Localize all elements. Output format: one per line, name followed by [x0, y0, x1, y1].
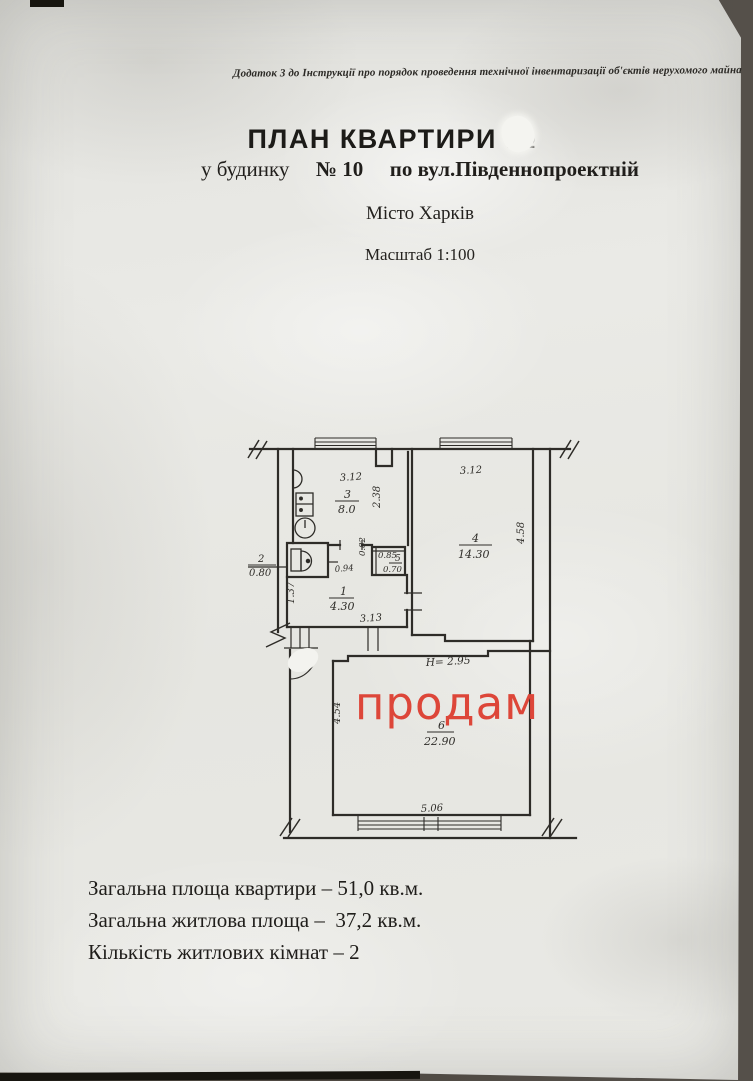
house-number: № 10 — [316, 157, 363, 181]
dim-kitchen-depth: 2.38 — [372, 486, 383, 509]
dim-hall-depth: 1.37 — [286, 581, 297, 604]
kitchen-area: 8.0 — [338, 503, 356, 516]
closet-area: 0.70 — [383, 565, 403, 575]
wc-area: 0.80 — [249, 568, 272, 579]
summary-living-area: Загальна житлова площа – 37,2 кв.м. — [88, 904, 423, 936]
dim-room6-width: 5.06 — [421, 803, 444, 815]
city-line: Місто Харків — [160, 203, 680, 225]
subtitle-line: у будинку № 10 по вул.Південнопроектній — [150, 157, 690, 182]
room4-area: 14.30 — [458, 548, 490, 561]
scan-artifact-top — [30, 0, 64, 7]
stove-icon — [296, 493, 313, 516]
floor-plan: 3.12 3 8.0 2.38 3.12 4 14.30 4.58 2 0.80… — [228, 432, 588, 854]
dim-room4-width: 3.12 — [460, 465, 483, 477]
dim-wc-passage: 0.94 — [334, 563, 354, 575]
subtitle-prefix: у будинку — [201, 157, 289, 181]
wc-number: 2 — [257, 554, 264, 565]
dim-kitchen-width: 3.12 — [339, 471, 362, 484]
dim-room4-depth: 4.58 — [516, 522, 527, 545]
street-name: по вул.Південнопроектній — [390, 157, 639, 181]
hall-area: 4.30 — [329, 600, 355, 613]
watermark-prodam: продам — [355, 677, 539, 730]
toilet-icon — [291, 549, 312, 571]
plan-fixtures — [291, 470, 315, 571]
hall-number: 1 — [340, 585, 347, 598]
dim-room6-depth: 4.54 — [332, 702, 343, 725]
scale-line: Масштаб 1:100 — [160, 245, 680, 265]
summary-total-area: Загальна площа квартири – 51,0 кв.м. — [88, 872, 423, 904]
scanned-document: { "page": { "header_note": "Додаток 3 до… — [0, 0, 753, 1080]
room6-area: 22.90 — [423, 735, 456, 748]
dim-closet-depth: 0.82 — [358, 537, 368, 556]
height-note: Н= 2.95 — [425, 655, 472, 669]
dim-hall-width: 3.13 — [359, 612, 382, 625]
scan-artifact-bottom — [0, 1071, 420, 1081]
summary-room-count: Кількість житлових кімнат – 2 — [88, 936, 423, 968]
plan-walls — [250, 449, 576, 838]
kitchen-number: 3 — [344, 488, 351, 501]
page-title: ПЛАН КВАРТИРИ № — [120, 124, 665, 155]
washbasin-icon — [293, 470, 302, 488]
sink-icon — [295, 518, 315, 538]
summary-block: Загальна площа квартири – 51,0 кв.м. Заг… — [88, 872, 423, 968]
room4-number: 4 — [471, 532, 479, 545]
